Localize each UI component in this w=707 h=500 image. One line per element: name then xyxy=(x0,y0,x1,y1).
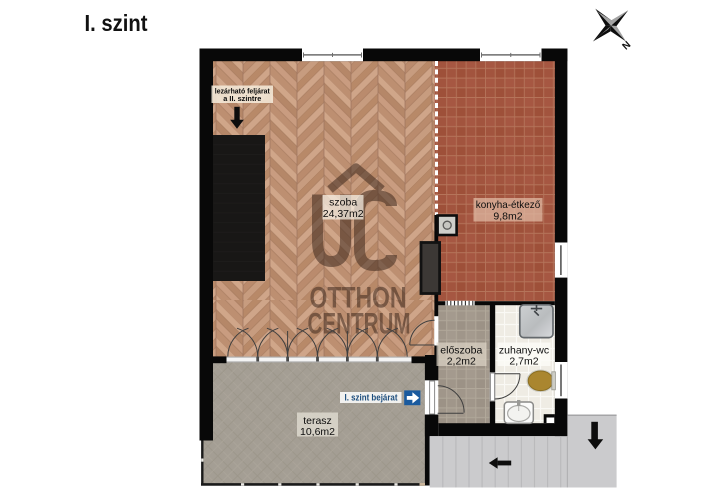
svg-text:9,8m2: 9,8m2 xyxy=(493,210,522,222)
svg-text:24,37m2: 24,37m2 xyxy=(323,208,364,220)
svg-text:I. szint bejárat: I. szint bejárat xyxy=(345,393,399,404)
svg-text:I. szint: I. szint xyxy=(85,10,148,36)
svg-text:CENTRUM: CENTRUM xyxy=(308,308,411,341)
svg-text:konyha-étkező: konyha-étkező xyxy=(476,199,541,211)
svg-text:lezárható feljárat: lezárható feljárat xyxy=(215,89,271,96)
svg-text:10,6m2: 10,6m2 xyxy=(300,426,335,438)
svg-text:a II. szintre: a II. szintre xyxy=(223,96,261,103)
svg-text:2,2m2: 2,2m2 xyxy=(447,355,476,367)
svg-text:2,7m2: 2,7m2 xyxy=(509,355,538,367)
svg-text:szoba: szoba xyxy=(329,196,357,208)
